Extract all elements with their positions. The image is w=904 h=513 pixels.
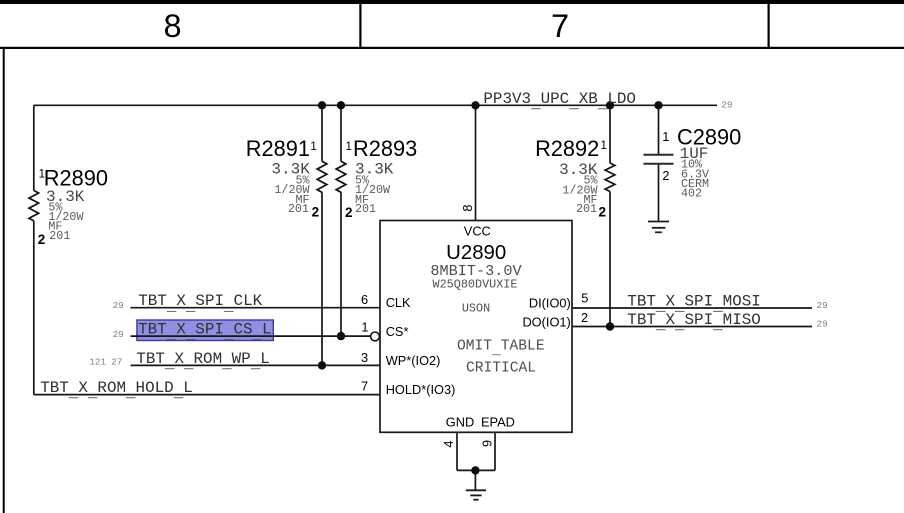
- svg-text:2: 2: [662, 168, 669, 183]
- svg-text:CRITICAL: CRITICAL: [466, 360, 536, 376]
- svg-text:29: 29: [817, 319, 828, 330]
- svg-text:2: 2: [598, 204, 606, 219]
- svg-text:27: 27: [111, 357, 122, 368]
- svg-text:1: 1: [310, 141, 316, 153]
- svg-text:EPAD: EPAD: [481, 414, 515, 429]
- svg-text:5: 5: [581, 291, 588, 306]
- svg-text:_ _ _: _ _ _: [627, 316, 723, 334]
- svg-text:2: 2: [581, 310, 588, 325]
- svg-text:HOLD*(IO3): HOLD*(IO3): [386, 382, 456, 397]
- svg-text:6: 6: [361, 292, 368, 307]
- svg-text:VCC: VCC: [464, 223, 491, 238]
- svg-text:201: 201: [576, 202, 597, 216]
- svg-text:29: 29: [113, 329, 124, 340]
- svg-text:402: 402: [681, 187, 702, 201]
- svg-text:W25Q80DVUXIE: W25Q80DVUXIE: [433, 277, 518, 291]
- svg-text:R2893: R2893: [353, 136, 417, 161]
- svg-text:1: 1: [345, 141, 351, 153]
- svg-text:2: 2: [38, 232, 46, 247]
- svg-text:1: 1: [601, 140, 607, 152]
- svg-text:8: 8: [460, 204, 475, 211]
- svg-text:201: 201: [355, 202, 376, 216]
- svg-text:7: 7: [551, 8, 569, 44]
- svg-text:29: 29: [817, 300, 828, 311]
- svg-text:R2891: R2891: [246, 136, 310, 161]
- svg-text:_ _ _ _: _ _ _ _: [136, 355, 260, 373]
- svg-text:121: 121: [89, 357, 106, 368]
- svg-text:OMIT TABLE: OMIT TABLE: [457, 339, 545, 355]
- svg-text:_ _ _ _: _ _ _ _: [40, 384, 184, 402]
- svg-text:R2892: R2892: [535, 136, 599, 161]
- svg-text:29: 29: [113, 300, 124, 311]
- svg-text:DO(IO1): DO(IO1): [522, 314, 570, 329]
- svg-text:201: 201: [49, 229, 70, 243]
- svg-text:9: 9: [480, 440, 495, 447]
- svg-text:USON: USON: [462, 302, 490, 316]
- svg-text:CS*: CS*: [386, 324, 409, 339]
- svg-text:1: 1: [361, 319, 368, 334]
- svg-text:2: 2: [345, 205, 353, 220]
- svg-text:DI(IO0): DI(IO0): [529, 295, 571, 310]
- svg-text:29: 29: [721, 99, 732, 110]
- svg-text:WP*(IO2): WP*(IO2): [386, 353, 441, 368]
- svg-text:U2890: U2890: [446, 242, 506, 264]
- svg-text:_ _ _: _ _ _: [138, 297, 234, 315]
- svg-text:_ _ _: _ _ _: [483, 95, 607, 113]
- svg-text:201: 201: [288, 202, 309, 216]
- svg-text:2: 2: [312, 204, 320, 219]
- svg-text:R2890: R2890: [44, 165, 108, 190]
- svg-text:4: 4: [441, 440, 456, 447]
- svg-text:7: 7: [361, 378, 368, 393]
- svg-text:8: 8: [163, 8, 181, 44]
- svg-text:_ _ _ _: _ _ _ _: [138, 325, 262, 343]
- svg-text:1: 1: [662, 129, 669, 144]
- svg-text:_: _: [491, 342, 501, 358]
- svg-text:GND: GND: [446, 414, 474, 429]
- svg-text:CLK: CLK: [386, 295, 411, 310]
- svg-text:3: 3: [361, 350, 368, 365]
